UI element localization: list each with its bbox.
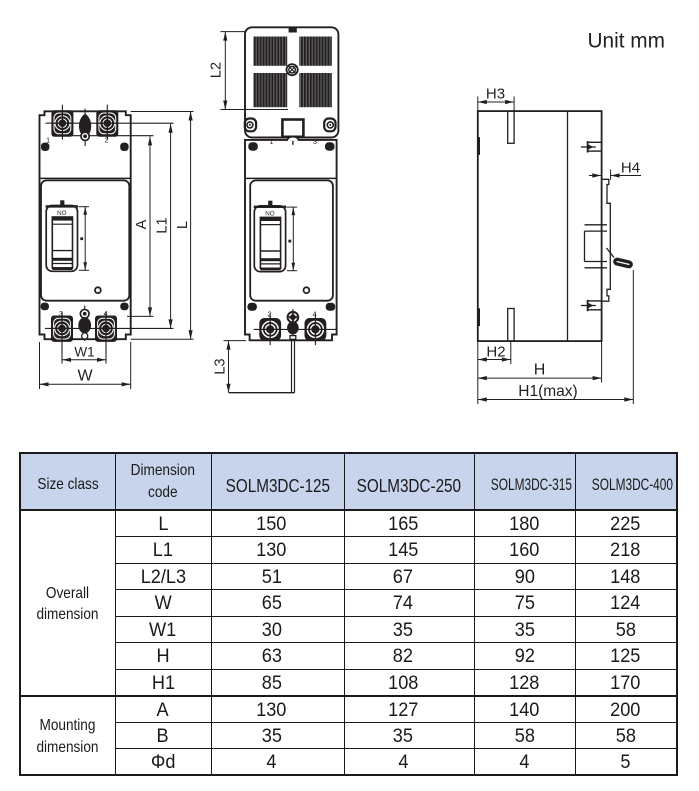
svg-text:4: 4 bbox=[104, 309, 108, 318]
svg-text:3: 3 bbox=[59, 309, 63, 318]
svg-text:L1: L1 bbox=[155, 217, 171, 233]
svg-text:W1: W1 bbox=[74, 345, 94, 360]
svg-text:3: 3 bbox=[313, 137, 317, 146]
svg-text:W: W bbox=[77, 368, 93, 385]
svg-text:L: L bbox=[175, 221, 191, 229]
svg-text:A: A bbox=[134, 219, 150, 229]
svg-text:1: 1 bbox=[269, 137, 273, 146]
svg-text:H3: H3 bbox=[486, 86, 505, 103]
svg-text:Unit mm: Unit mm bbox=[588, 30, 665, 53]
svg-text:4: 4 bbox=[313, 310, 317, 319]
svg-text:ON: ON bbox=[265, 209, 275, 216]
svg-text:H: H bbox=[534, 362, 546, 379]
svg-text:ON: ON bbox=[57, 209, 67, 216]
svg-text:2: 2 bbox=[105, 136, 109, 145]
svg-text:H2: H2 bbox=[486, 344, 505, 361]
svg-text:2: 2 bbox=[268, 310, 272, 319]
svg-text:H4: H4 bbox=[621, 160, 640, 177]
svg-text:H1(max): H1(max) bbox=[518, 383, 577, 400]
svg-text:L3: L3 bbox=[212, 358, 228, 374]
svg-text:L2: L2 bbox=[209, 62, 225, 78]
